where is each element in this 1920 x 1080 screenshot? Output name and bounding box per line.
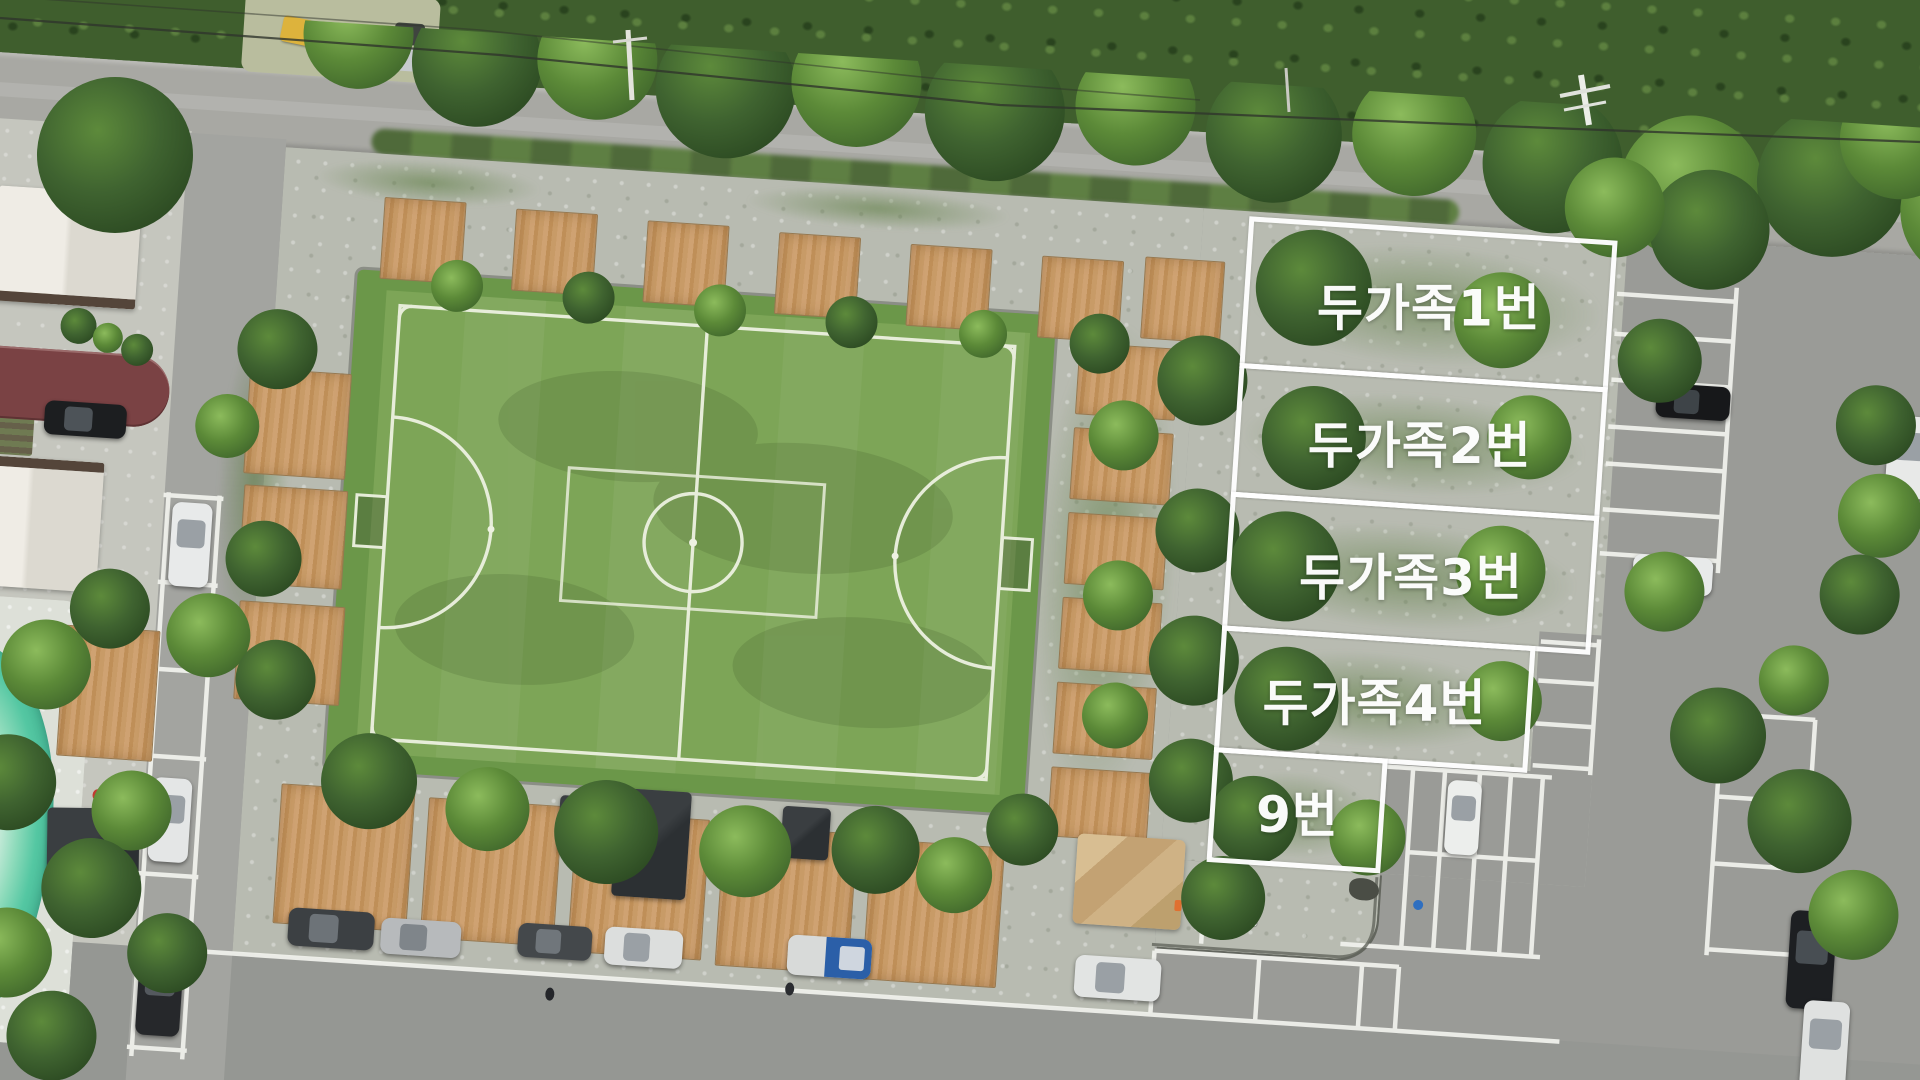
power-cable [0, 0, 1200, 100]
utility-pole [1286, 68, 1289, 112]
utility-pole [1560, 75, 1610, 125]
aerial-photo-campground: 두가족1번 두가족2번 두가족3번 두가족4번 9번 [0, 0, 1920, 1080]
powerline-overlay [0, 0, 1920, 1080]
utility-pole [613, 30, 647, 100]
